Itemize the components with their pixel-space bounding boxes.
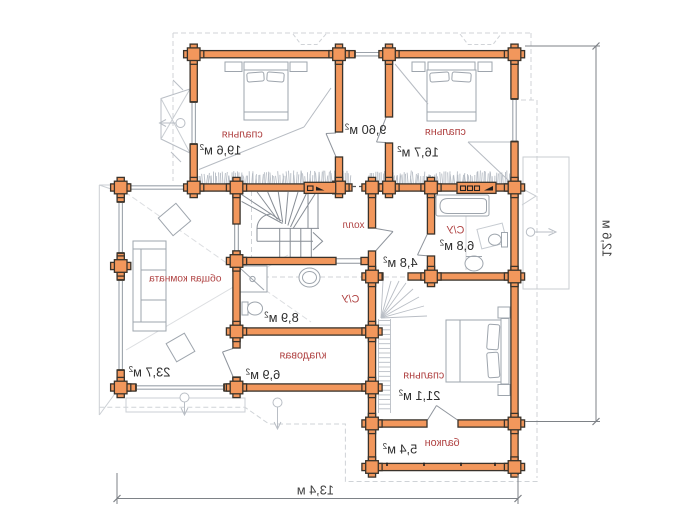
svg-text:кладовая: кладовая: [279, 350, 326, 362]
svg-text:С/У: С/У: [447, 225, 465, 237]
svg-text:23,7 м2: 23,7 м2: [128, 365, 170, 380]
svg-text:6,8 м2: 6,8 м2: [439, 238, 474, 253]
svg-text:13,4 м: 13,4 м: [297, 483, 334, 498]
svg-text:холл: холл: [342, 220, 364, 231]
svg-text:С/У: С/У: [342, 294, 360, 306]
svg-text:12,6 м: 12,6 м: [600, 220, 615, 257]
svg-text:спальня: спальня: [425, 126, 466, 138]
svg-text:8,9 м2: 8,9 м2: [264, 310, 299, 325]
svg-text:6,9 м2: 6,9 м2: [245, 367, 280, 382]
svg-text:спальня: спальня: [222, 129, 263, 141]
svg-text:19,6 м2: 19,6 м2: [199, 143, 241, 158]
svg-text:9,60 м2: 9,60 м2: [344, 122, 386, 137]
svg-text:5,4 м2: 5,4 м2: [382, 442, 417, 457]
svg-text:общая комната: общая комната: [149, 273, 222, 285]
svg-text:16,7 м2: 16,7 м2: [397, 145, 439, 160]
svg-text:спальня: спальня: [403, 370, 444, 382]
svg-text:4,8 м2: 4,8 м2: [382, 255, 417, 270]
svg-text:балкон: балкон: [425, 437, 460, 449]
svg-text:21,1 м2: 21,1 м2: [398, 388, 440, 403]
